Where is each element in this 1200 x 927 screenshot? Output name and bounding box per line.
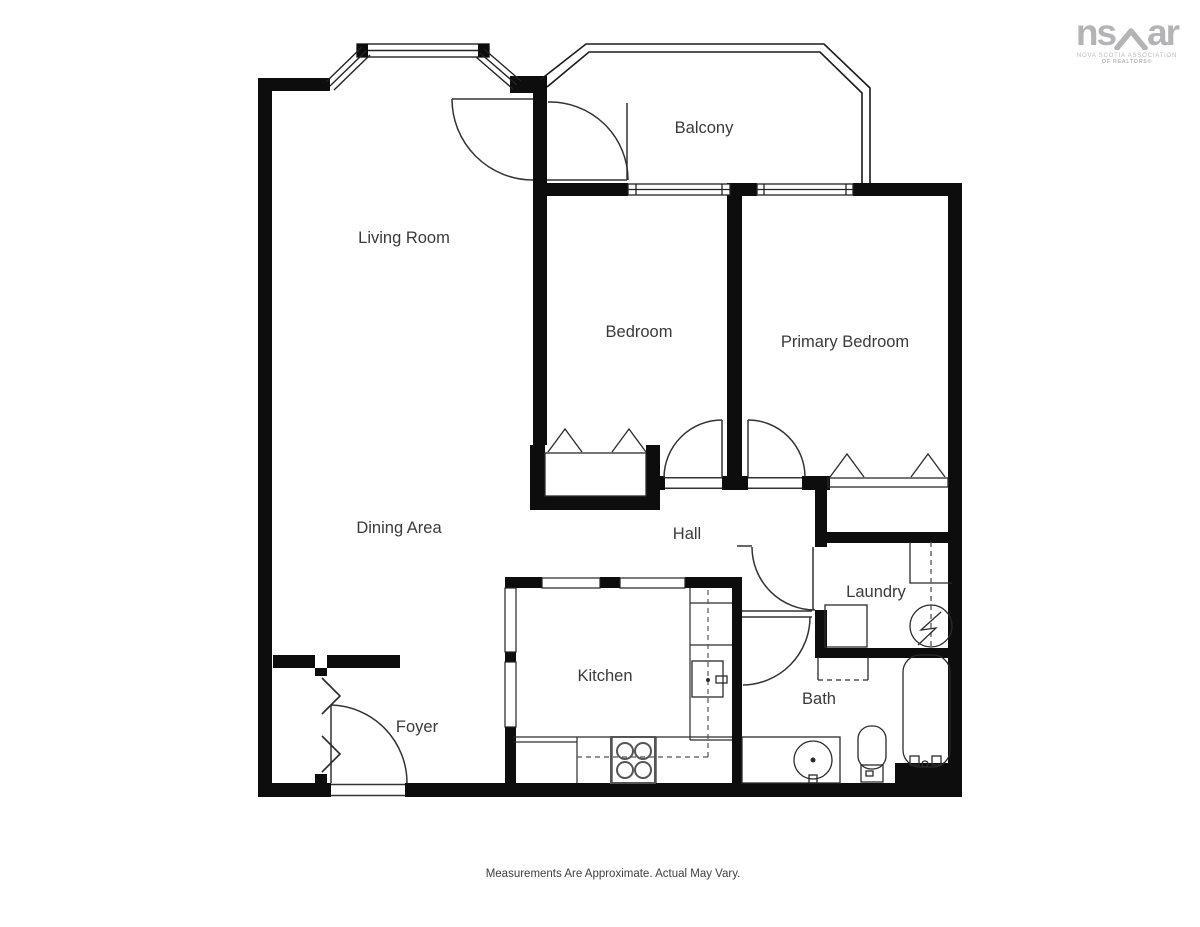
bedroom-door: [664, 420, 722, 488]
bath-door: [742, 611, 812, 685]
walls: [258, 76, 962, 797]
stove-icon: [611, 737, 655, 783]
floor-plan: Balcony Living Room Bedroom Primary Bedr…: [0, 0, 1200, 927]
laundry-cabinet: [825, 605, 867, 647]
doors: [331, 99, 815, 797]
bathtub-icon: [903, 655, 950, 767]
bay-window-left-angled: [326, 47, 370, 90]
label-laundry: Laundry: [846, 583, 906, 601]
label-dining-area: Dining Area: [356, 519, 442, 537]
sink-icon: [794, 741, 832, 783]
bath-vanity: [742, 737, 840, 783]
bedroom-closet: [545, 429, 646, 496]
hanger-symbol: [612, 429, 646, 452]
logo-text-ar: ar: [1147, 14, 1178, 51]
label-balcony: Balcony: [675, 119, 734, 137]
toilet-icon: [858, 726, 886, 782]
label-primary-bedroom: Primary Bedroom: [781, 333, 909, 351]
hanger-symbol: [548, 429, 582, 452]
primary-closet: [828, 454, 948, 487]
hanger-symbol: [830, 454, 864, 477]
bay-window: [326, 44, 521, 90]
bath-fixtures: [742, 655, 950, 783]
label-bedroom: Bedroom: [606, 323, 673, 341]
label-foyer: Foyer: [396, 718, 439, 736]
label-living-room: Living Room: [358, 229, 450, 247]
wall-top-left: [258, 78, 322, 91]
wall-left-exterior: [258, 78, 272, 797]
label-kitchen: Kitchen: [577, 667, 632, 685]
label-bath: Bath: [802, 690, 836, 708]
kitchen-passthrough: [505, 578, 685, 727]
primary-bedroom-door: [748, 420, 805, 488]
label-hall: Hall: [673, 525, 701, 543]
disclaimer-text: Measurements Are Approximate. Actual May…: [486, 868, 741, 880]
logo-text-ns: ns: [1076, 14, 1115, 51]
kitchen-counters: [513, 588, 732, 783]
bay-window-right-angled: [476, 49, 521, 89]
bath-linen-closet: [818, 657, 868, 680]
hanger-symbol: [911, 454, 945, 477]
lightning-bolt: [918, 612, 941, 645]
nsar-logo: ns ar NOVA SCOTIA ASSOCIATION OF REALTOR…: [1072, 14, 1182, 65]
wall-bath-corner-block: [895, 763, 962, 797]
dishwasher-icon: [692, 661, 727, 697]
laundry-door: [737, 546, 815, 610]
logo-subtitle-2: OF REALTORS®: [1072, 59, 1182, 65]
house-roof-icon: [1114, 26, 1148, 50]
